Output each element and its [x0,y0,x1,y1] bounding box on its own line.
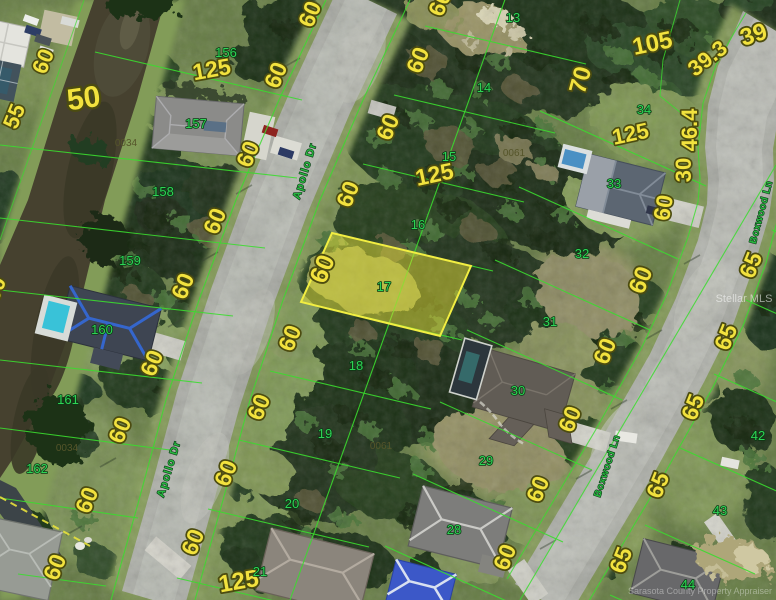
svg-text:30: 30 [671,158,696,182]
svg-text:46.4: 46.4 [677,108,702,152]
svg-text:18: 18 [349,358,363,373]
svg-text:19: 19 [318,426,332,441]
svg-text:160: 160 [91,322,113,337]
svg-text:13: 13 [506,10,520,25]
svg-text:161: 161 [57,392,79,407]
svg-text:0061: 0061 [503,148,526,159]
svg-text:0034: 0034 [56,443,79,454]
svg-text:0034: 0034 [115,138,138,149]
svg-text:34: 34 [637,102,651,117]
svg-text:157: 157 [185,116,207,131]
svg-text:0061: 0061 [370,441,393,452]
svg-text:162: 162 [26,461,48,476]
svg-text:14: 14 [477,80,491,95]
svg-text:20: 20 [285,496,299,511]
svg-text:28: 28 [447,522,461,537]
svg-text:16: 16 [411,217,425,232]
svg-text:158: 158 [152,184,174,199]
svg-text:43: 43 [713,503,727,518]
svg-text:15: 15 [442,149,456,164]
svg-text:156: 156 [215,45,237,60]
svg-text:60: 60 [648,193,678,223]
svg-text:29: 29 [479,453,493,468]
svg-text:50: 50 [65,80,103,117]
svg-text:159: 159 [119,253,141,268]
svg-text:31: 31 [543,314,557,329]
svg-text:Stellar MLS: Stellar MLS [716,293,773,305]
svg-text:32: 32 [575,246,589,261]
svg-text:17: 17 [377,279,391,294]
svg-text:Sarasota County Property Appra: Sarasota County Property Appraiser [628,586,772,596]
svg-text:21: 21 [253,564,267,579]
svg-text:30: 30 [511,383,525,398]
svg-text:42: 42 [751,428,765,443]
svg-text:33: 33 [607,176,621,191]
